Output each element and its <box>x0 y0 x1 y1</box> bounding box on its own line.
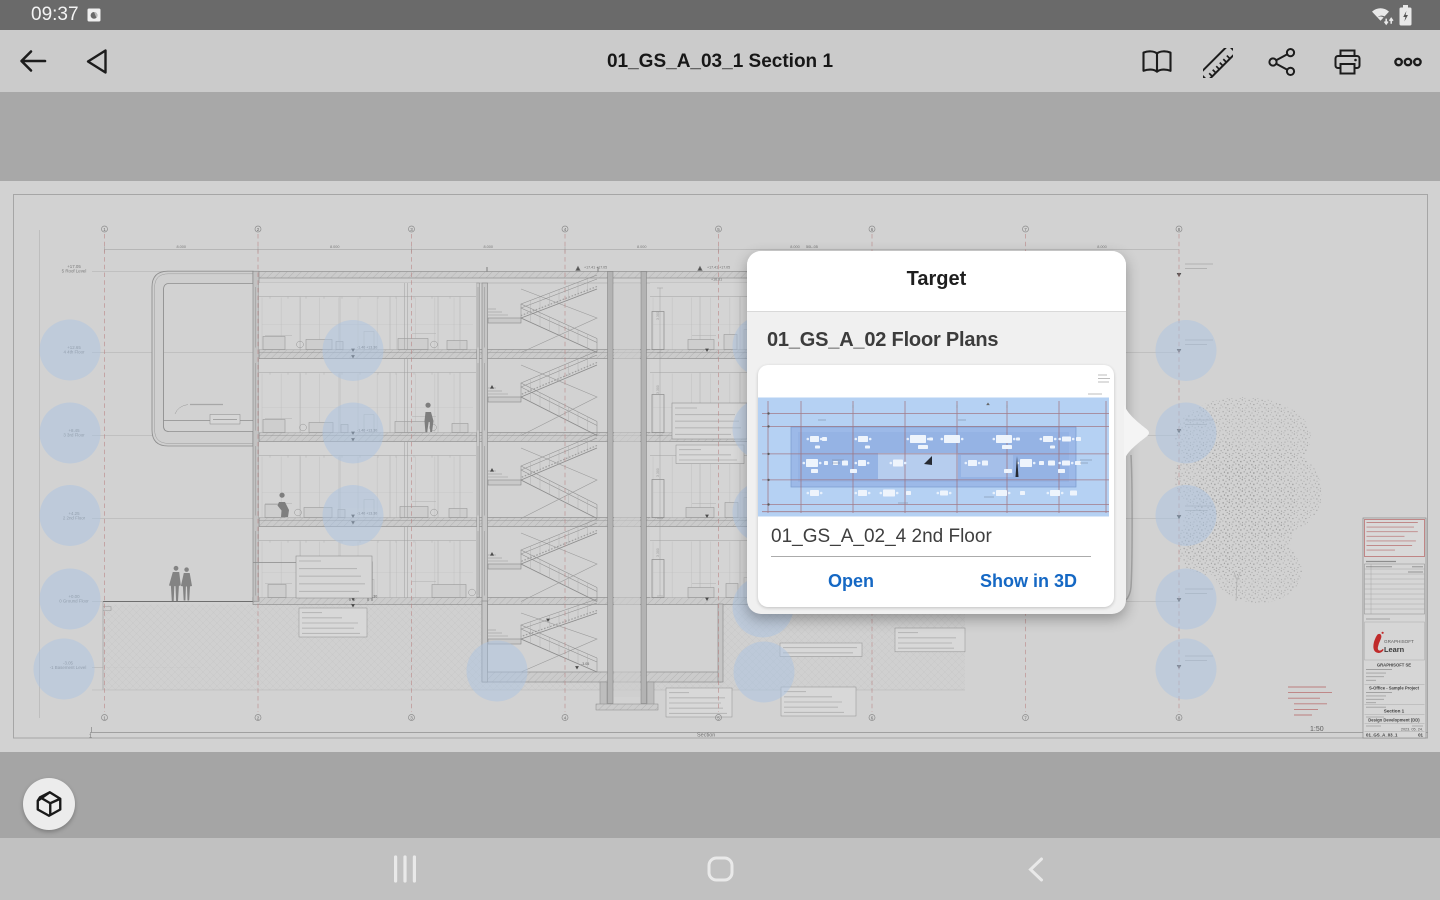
svg-text:3: 3 <box>410 715 413 720</box>
svg-text:1: 1 <box>103 227 106 232</box>
svg-text:GRAPHISOFT SE: GRAPHISOFT SE <box>1377 663 1411 668</box>
svg-text:01_GS_A_03_1: 01_GS_A_03_1 <box>1366 733 1398 738</box>
svg-text:7: 7 <box>1024 715 1027 720</box>
svg-text:01: 01 <box>1418 733 1423 738</box>
svg-text:Section: Section <box>697 733 715 739</box>
svg-text:2: 2 <box>257 715 260 720</box>
svg-text:8.000: 8.000 <box>330 245 340 249</box>
svg-text:3.300: 3.300 <box>656 385 660 394</box>
svg-text:4: 4 <box>564 227 567 232</box>
svg-text:3.300: 3.300 <box>656 548 660 557</box>
svg-text:8.000: 8.000 <box>176 245 186 249</box>
svg-text:3: 3 <box>410 227 413 232</box>
svg-text:Learn: Learn <box>1384 645 1405 654</box>
svg-text:Design Development (DD): Design Development (DD) <box>1368 718 1420 723</box>
svg-text:2023. 05. 24.: 2023. 05. 24. <box>1401 728 1423 732</box>
svg-text:Section 1: Section 1 <box>1384 709 1405 714</box>
svg-text:6: 6 <box>871 227 874 232</box>
svg-text:3.300: 3.300 <box>656 468 660 477</box>
svg-text:1: 1 <box>89 734 92 740</box>
svg-text:4: 4 <box>564 715 567 720</box>
svg-text:-3.05: -3.05 <box>581 662 589 666</box>
svg-text:GRAPHISOFT: GRAPHISOFT <box>1384 639 1414 644</box>
svg-text:+16.81: +16.81 <box>711 278 722 282</box>
svg-text:5 Roof Level: 5 Roof Level <box>62 269 87 274</box>
svg-text:8: 8 <box>1178 227 1181 232</box>
svg-text:8.000: 8.000 <box>637 245 647 249</box>
svg-text:2: 2 <box>257 227 260 232</box>
svg-text:1: 1 <box>103 715 106 720</box>
svg-text:1:50: 1:50 <box>1310 726 1324 733</box>
svg-text:5: 5 <box>717 227 720 232</box>
svg-text:8.000: 8.000 <box>483 245 493 249</box>
svg-text:8: 8 <box>1178 715 1181 720</box>
svg-text:7: 7 <box>1024 227 1027 232</box>
svg-text:S-Office - Sample Project: S-Office - Sample Project <box>1369 686 1420 691</box>
svg-text:3.300: 3.300 <box>656 311 660 320</box>
svg-text:+17.41 +17.05: +17.41 +17.05 <box>584 266 607 270</box>
svg-text:6: 6 <box>871 715 874 720</box>
